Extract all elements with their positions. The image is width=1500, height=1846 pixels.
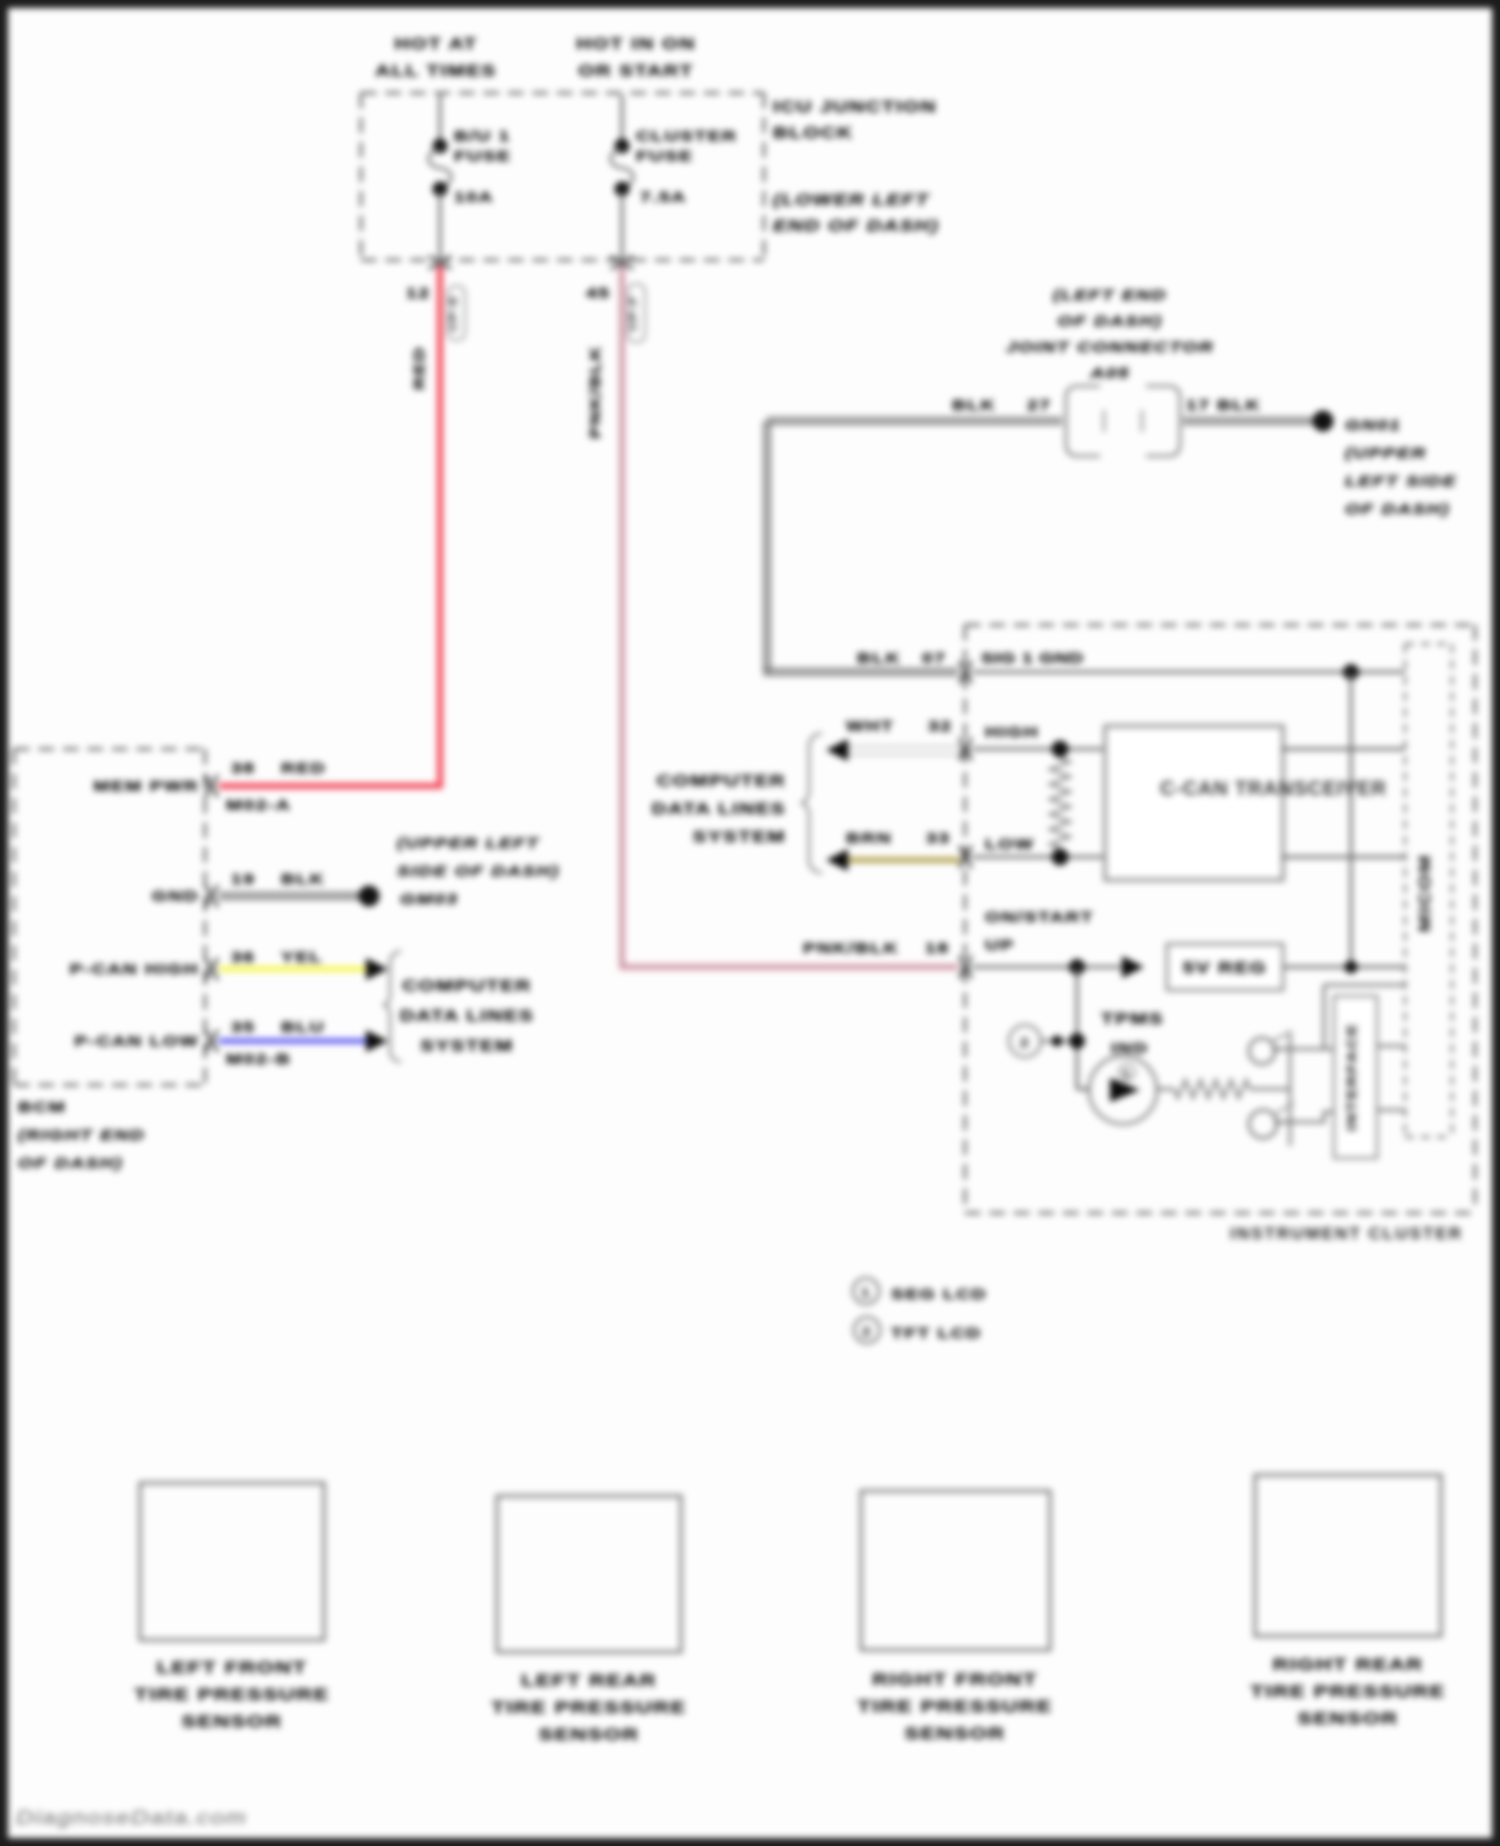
svg-text:ON/START: ON/START bbox=[985, 908, 1094, 925]
svg-text:19: 19 bbox=[231, 870, 255, 887]
svg-text:BLOCK: BLOCK bbox=[773, 123, 853, 141]
svg-text:SENSOR: SENSOR bbox=[1297, 1709, 1398, 1728]
svg-text:LEFT FRONT: LEFT FRONT bbox=[157, 1658, 308, 1677]
svg-text:ICU JUNCTION: ICU JUNCTION bbox=[773, 97, 937, 115]
svg-text:2: 2 bbox=[1020, 1036, 1031, 1051]
svg-text:PNK/BLK: PNK/BLK bbox=[803, 939, 899, 956]
svg-text:RED: RED bbox=[411, 346, 428, 390]
svg-text:COMPUTER: COMPUTER bbox=[402, 976, 531, 994]
svg-text:END OF DASH): END OF DASH) bbox=[773, 216, 939, 234]
svg-text:LOW: LOW bbox=[985, 835, 1034, 852]
svg-text:12: 12 bbox=[406, 284, 430, 301]
svg-text:FUSE: FUSE bbox=[454, 147, 511, 164]
svg-text:HOT AT: HOT AT bbox=[394, 34, 477, 52]
svg-text:GN01: GN01 bbox=[1345, 416, 1401, 433]
svg-text:MEM PWR: MEM PWR bbox=[93, 777, 199, 794]
svg-text:TPMS: TPMS bbox=[1101, 1009, 1164, 1027]
svg-text:SIG 1 GND: SIG 1 GND bbox=[981, 649, 1084, 666]
svg-text:07: 07 bbox=[922, 649, 946, 666]
svg-text:ALL TIMES: ALL TIMES bbox=[375, 61, 496, 79]
svg-text:RIGHT REAR: RIGHT REAR bbox=[1273, 1655, 1424, 1674]
svg-text:LEFT SIDE: LEFT SIDE bbox=[1345, 472, 1457, 489]
svg-text:P-CAN LOW: P-CAN LOW bbox=[74, 1032, 199, 1049]
svg-text:BLK: BLK bbox=[281, 870, 325, 887]
svg-text:BCM: BCM bbox=[18, 1098, 66, 1115]
svg-text:(RIGHT END: (RIGHT END bbox=[18, 1126, 145, 1143]
svg-text:17: 17 bbox=[1186, 396, 1210, 413]
svg-text:1: 1 bbox=[861, 1286, 872, 1301]
svg-text:SEG LCD: SEG LCD bbox=[891, 1285, 987, 1302]
svg-text:RED: RED bbox=[281, 759, 326, 776]
svg-text:SYSTEM: SYSTEM bbox=[420, 1036, 513, 1054]
svg-text:(LOWER LEFT: (LOWER LEFT bbox=[773, 190, 930, 208]
svg-text:TIRE PRESSURE: TIRE PRESSURE bbox=[491, 1698, 686, 1717]
svg-text:(UPPER LEFT: (UPPER LEFT bbox=[397, 834, 540, 851]
svg-text:INTERFACE: INTERFACE bbox=[1345, 1023, 1360, 1131]
svg-text:HOT IN ON: HOT IN ON bbox=[576, 34, 696, 52]
svg-text:OF DASH): OF DASH) bbox=[1345, 500, 1450, 517]
svg-text:INSTRUMENT CLUSTER: INSTRUMENT CLUSTER bbox=[1230, 1224, 1462, 1243]
svg-text:B/U 1: B/U 1 bbox=[454, 127, 511, 144]
svg-text:2: 2 bbox=[862, 1325, 873, 1340]
svg-text:A05: A05 bbox=[1089, 364, 1130, 381]
svg-text:COMPUTER: COMPUTER bbox=[657, 771, 786, 789]
svg-text:SIDE OF DASH): SIDE OF DASH) bbox=[397, 862, 560, 879]
svg-text:TIRE PRESSURE: TIRE PRESSURE bbox=[134, 1685, 329, 1704]
svg-text:10A: 10A bbox=[454, 188, 494, 205]
svg-text:SENSOR: SENSOR bbox=[538, 1725, 639, 1744]
svg-text:TIRE PRESSURE: TIRE PRESSURE bbox=[1250, 1682, 1445, 1701]
svg-text:FUSE: FUSE bbox=[636, 147, 693, 164]
svg-text:I/P-E: I/P-E bbox=[449, 295, 459, 331]
svg-text:HIGH: HIGH bbox=[985, 723, 1039, 740]
svg-text:JOINT CONNECTOR: JOINT CONNECTOR bbox=[1006, 338, 1214, 355]
svg-text:1: 1 bbox=[1122, 1067, 1131, 1079]
svg-text:45: 45 bbox=[586, 284, 610, 301]
svg-text:M02-B: M02-B bbox=[226, 1050, 291, 1067]
svg-text:5V REG: 5V REG bbox=[1183, 958, 1267, 976]
svg-text:38: 38 bbox=[231, 759, 255, 776]
svg-text:SENSOR: SENSOR bbox=[904, 1724, 1005, 1743]
svg-text:MICOM: MICOM bbox=[1415, 854, 1433, 932]
svg-text:36: 36 bbox=[231, 948, 255, 965]
svg-text:WHT: WHT bbox=[846, 717, 894, 734]
svg-text:C-CAN TRANSCEIVER: C-CAN TRANSCEIVER bbox=[1160, 778, 1388, 800]
svg-text:P-CAN HIGH: P-CAN HIGH bbox=[70, 960, 199, 977]
svg-text:BLK: BLK bbox=[857, 649, 901, 666]
svg-text:SYSTEM: SYSTEM bbox=[693, 827, 786, 845]
svg-text:OF DASH): OF DASH) bbox=[18, 1154, 123, 1171]
svg-text:(LEFT END: (LEFT END bbox=[1053, 286, 1167, 303]
svg-text:I/P-F: I/P-F bbox=[629, 295, 639, 330]
svg-text:7.5A: 7.5A bbox=[640, 188, 687, 205]
svg-text:33: 33 bbox=[926, 829, 950, 846]
svg-text:18: 18 bbox=[925, 939, 949, 956]
svg-text:M02-A: M02-A bbox=[226, 796, 291, 813]
svg-text:32: 32 bbox=[928, 717, 952, 734]
svg-text:BLK: BLK bbox=[952, 396, 996, 413]
svg-text:DATA LINES: DATA LINES bbox=[652, 799, 786, 817]
svg-text:DiagnoseData.com: DiagnoseData.com bbox=[16, 1807, 247, 1829]
svg-text:27: 27 bbox=[1027, 396, 1051, 413]
svg-text:GND: GND bbox=[152, 887, 199, 904]
svg-text:CLUSTER: CLUSTER bbox=[636, 127, 737, 144]
svg-text:BRN: BRN bbox=[846, 829, 892, 846]
svg-text:TFT LCD: TFT LCD bbox=[891, 1324, 982, 1341]
svg-text:OR START: OR START bbox=[578, 61, 693, 79]
svg-text:(UPPER: (UPPER bbox=[1345, 444, 1427, 461]
svg-text:UP: UP bbox=[985, 936, 1015, 953]
svg-text:SENSOR: SENSOR bbox=[181, 1712, 282, 1731]
svg-text:PNK/BLK: PNK/BLK bbox=[587, 345, 604, 438]
svg-text:OF DASH): OF DASH) bbox=[1057, 312, 1162, 329]
svg-text:RIGHT FRONT: RIGHT FRONT bbox=[872, 1670, 1038, 1689]
svg-text:IND: IND bbox=[1111, 1039, 1149, 1056]
svg-text:35: 35 bbox=[231, 1018, 255, 1035]
svg-text:GM03: GM03 bbox=[400, 890, 458, 907]
svg-text:YEL: YEL bbox=[281, 948, 323, 965]
svg-text:TIRE PRESSURE: TIRE PRESSURE bbox=[857, 1697, 1052, 1716]
svg-text:BLK: BLK bbox=[1217, 396, 1261, 413]
svg-text:DATA LINES: DATA LINES bbox=[400, 1006, 534, 1024]
svg-text:BLU: BLU bbox=[281, 1018, 325, 1035]
svg-text:LEFT REAR: LEFT REAR bbox=[521, 1671, 657, 1690]
